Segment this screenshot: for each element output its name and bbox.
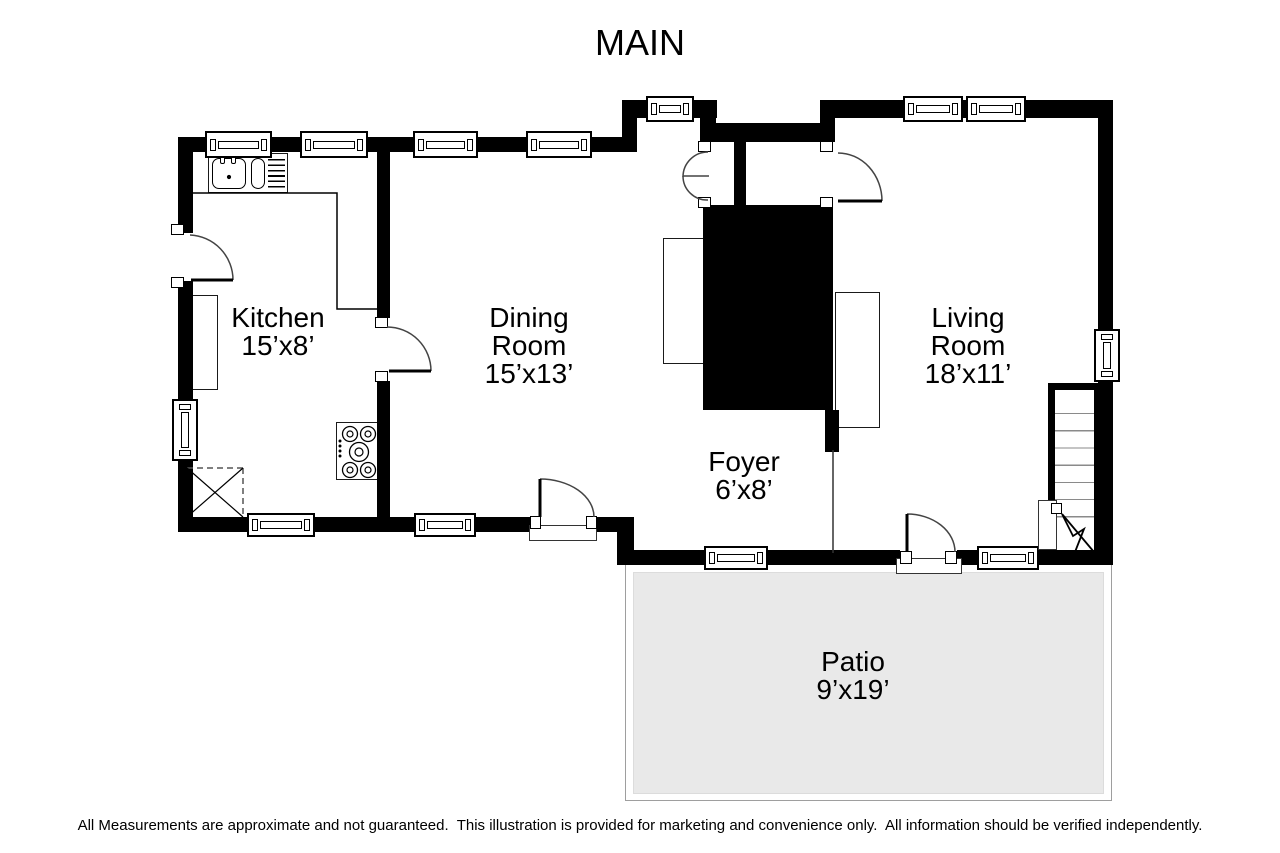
wall-foyer-stub bbox=[825, 410, 839, 452]
room-label-dining: Dining Room 15’x13’ bbox=[485, 304, 574, 388]
stair-steps bbox=[1055, 397, 1094, 520]
double-door-arc bbox=[683, 152, 708, 177]
window bbox=[300, 131, 368, 158]
door-jamb bbox=[586, 516, 597, 529]
window bbox=[903, 96, 963, 122]
dining-cabinet bbox=[663, 238, 704, 364]
door-jamb bbox=[530, 516, 541, 529]
room-dimensions: 15’x8’ bbox=[231, 332, 324, 360]
wall-left-upper bbox=[178, 137, 193, 233]
wall-closet-divider bbox=[734, 140, 746, 208]
disclaimer-text: All Measurements are approximate and not… bbox=[0, 817, 1280, 835]
room-dimensions: 15’x13’ bbox=[485, 360, 574, 388]
door-jamb bbox=[698, 141, 711, 152]
door-arc bbox=[387, 327, 431, 371]
living-cabinet bbox=[835, 292, 880, 428]
door-jamb bbox=[375, 317, 388, 328]
dish-rack-icon bbox=[268, 159, 285, 188]
door-jamb bbox=[820, 197, 833, 208]
room-name: Kitchen bbox=[231, 304, 324, 332]
door-arc bbox=[907, 514, 955, 552]
window bbox=[172, 399, 198, 461]
page-title: MAIN bbox=[0, 24, 1280, 62]
room-name: Dining bbox=[485, 304, 574, 332]
room-label-patio: Patio 9’x19’ bbox=[816, 648, 889, 704]
wall-kitchen-divider-lower bbox=[377, 381, 390, 532]
room-label-foyer: Foyer 6’x8’ bbox=[708, 448, 780, 504]
window bbox=[413, 131, 478, 158]
room-name: Room bbox=[485, 332, 574, 360]
room-label-living: Living Room 18’x11’ bbox=[925, 304, 1012, 388]
window bbox=[704, 546, 768, 570]
room-dimensions: 9’x19’ bbox=[816, 676, 889, 704]
window bbox=[966, 96, 1026, 122]
door-jamb bbox=[171, 277, 184, 288]
door-arc bbox=[190, 235, 233, 280]
room-dimensions: 18’x11’ bbox=[925, 360, 1012, 388]
room-name: Living bbox=[925, 304, 1012, 332]
stove bbox=[336, 422, 379, 480]
refrigerator bbox=[190, 295, 218, 390]
appliance-space-icon bbox=[187, 468, 243, 517]
door-jamb bbox=[375, 371, 388, 382]
window bbox=[646, 96, 694, 122]
window bbox=[247, 513, 315, 537]
room-name: Patio bbox=[816, 648, 889, 676]
chimney-mass bbox=[703, 205, 833, 410]
wall-left-mid bbox=[178, 281, 193, 399]
door-arc bbox=[540, 479, 594, 517]
window bbox=[977, 546, 1039, 570]
wall-top-recessed bbox=[710, 123, 822, 142]
window bbox=[205, 131, 272, 158]
door-jamb bbox=[945, 551, 957, 564]
room-name: Foyer bbox=[708, 448, 780, 476]
sink-basin-small bbox=[251, 158, 265, 189]
room-name: Room bbox=[925, 332, 1012, 360]
room-dimensions: 6’x8’ bbox=[708, 476, 780, 504]
door-jamb bbox=[171, 224, 184, 235]
window bbox=[526, 131, 592, 158]
sink-bowl bbox=[212, 158, 246, 189]
floorplan-page: MAIN bbox=[0, 0, 1280, 853]
stair-arrow-base bbox=[1051, 503, 1062, 514]
window bbox=[414, 513, 476, 537]
wall-right-upper bbox=[1098, 100, 1113, 329]
window bbox=[1094, 329, 1120, 382]
door-arc bbox=[838, 153, 882, 201]
door-jamb bbox=[900, 551, 912, 564]
door-jamb bbox=[698, 197, 711, 208]
room-label-kitchen: Kitchen 15’x8’ bbox=[231, 304, 324, 360]
counter-edge bbox=[193, 193, 377, 309]
door-jamb bbox=[820, 141, 833, 152]
wall-kitchen-divider-upper bbox=[377, 152, 390, 318]
